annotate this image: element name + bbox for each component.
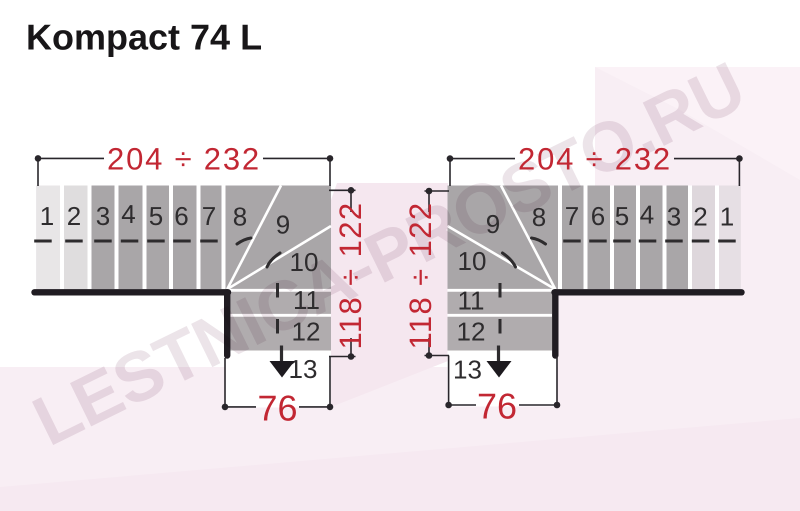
svg-text:9: 9 <box>486 209 500 239</box>
svg-text:11: 11 <box>293 285 320 315</box>
svg-text:5: 5 <box>615 201 629 231</box>
svg-text:11: 11 <box>458 285 485 315</box>
svg-text:10: 10 <box>458 246 487 276</box>
svg-text:12: 12 <box>292 316 321 346</box>
svg-text:1: 1 <box>40 201 54 231</box>
svg-text:3: 3 <box>667 201 681 231</box>
svg-text:13: 13 <box>453 354 482 384</box>
svg-text:118 ÷ 122: 118 ÷ 122 <box>333 202 368 350</box>
svg-text:118 ÷ 122: 118 ÷ 122 <box>403 202 438 350</box>
svg-text:3: 3 <box>96 201 110 231</box>
svg-text:13: 13 <box>289 354 318 384</box>
svg-text:204 ÷ 232: 204 ÷ 232 <box>107 142 261 177</box>
svg-text:7: 7 <box>202 201 216 231</box>
svg-text:76: 76 <box>257 388 297 429</box>
svg-text:1: 1 <box>720 201 734 231</box>
svg-text:6: 6 <box>591 201 605 231</box>
svg-text:12: 12 <box>457 316 486 346</box>
svg-text:8: 8 <box>233 201 247 231</box>
svg-text:7: 7 <box>565 201 579 231</box>
svg-text:10: 10 <box>290 247 319 277</box>
svg-text:2: 2 <box>67 201 81 231</box>
svg-text:204 ÷ 232: 204 ÷ 232 <box>518 142 672 177</box>
svg-text:2: 2 <box>693 201 707 231</box>
svg-text:5: 5 <box>149 201 163 231</box>
svg-text:9: 9 <box>276 209 290 239</box>
svg-text:Kompact 74 L: Kompact 74 L <box>26 17 262 58</box>
svg-text:4: 4 <box>640 199 654 229</box>
svg-text:4: 4 <box>121 199 135 229</box>
svg-text:6: 6 <box>174 201 188 231</box>
svg-text:8: 8 <box>532 202 546 232</box>
svg-text:76: 76 <box>477 386 517 427</box>
